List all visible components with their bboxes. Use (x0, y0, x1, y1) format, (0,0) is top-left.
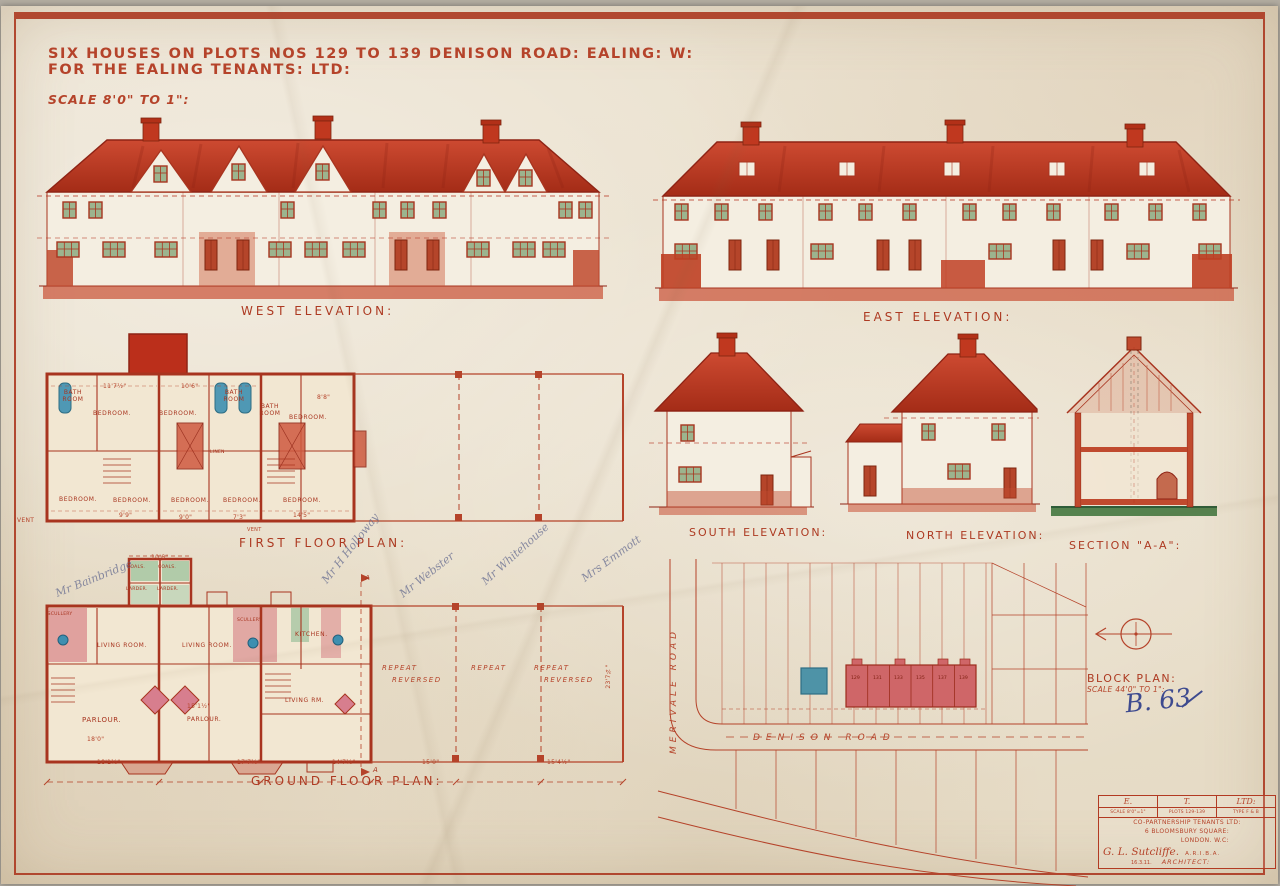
sheet-scale-note: SCALE 8'0" TO 1": (48, 92, 694, 107)
west-elevation-drawing (43, 110, 603, 306)
sheet-title-block: SIX HOUSES ON PLOTS NOS 129 TO 139 DENIS… (48, 46, 694, 107)
architect-signature: G. L. Sutcliffe. (1103, 846, 1179, 858)
room-label-living-room: LIVING RM. (285, 697, 324, 704)
room-label-scullery: SCULLERY (47, 612, 73, 617)
dimension: 10'6" (151, 554, 168, 561)
vent-note: VENT (17, 517, 34, 524)
sheet-title-line2: FOR THE EALING TENANTS: LTD: (48, 62, 694, 78)
room-label-bathroom: BATH ROOM (59, 390, 87, 404)
merivale-road-label: MERIVALE ROAD (669, 628, 679, 754)
room-label-bedroom: BEDROOM. (171, 497, 209, 504)
title-block-abbr-t: T. (1158, 796, 1217, 807)
room-label-bedroom: BEDROOM. (283, 497, 321, 504)
title-block: E. T. LTD: SCALE 8'0"=1" PLOTS 129-139 T… (1098, 795, 1276, 869)
signature-date: 16.3.11. (1131, 860, 1152, 866)
compass-icon (1094, 606, 1176, 662)
block-plan-drawing (656, 559, 1088, 886)
dimension: 15'4½" (547, 759, 570, 766)
title-block-meta-plots: PLOTS 129-139 (1158, 808, 1217, 817)
block-plan-label: BLOCK PLAN: (1087, 672, 1176, 685)
title-block-company-line1: CO-PARTNERSHIP TENANTS LTD: (1099, 818, 1275, 827)
title-block-company-line3: LONDON. W.C: (1099, 836, 1275, 845)
room-label-coals: COALS. (158, 565, 176, 570)
title-block-date-row: 16.3.11. ARCHITECT: (1099, 858, 1275, 866)
room-label-kitchen: KITCHEN. (295, 631, 328, 638)
title-block-meta-type: TYPE F & B (1217, 808, 1275, 817)
dimension: 14'7½" (332, 759, 355, 766)
room-label-bedroom: BEDROOM. (159, 410, 197, 417)
repeat-note: REVERSED (544, 676, 594, 684)
room-label-larder: LARDER. (157, 587, 178, 592)
section-drawing (1059, 339, 1209, 529)
dimension: 18'1½" (97, 759, 120, 766)
title-block-meta-row: SCALE 8'0"=1" PLOTS 129-139 TYPE F & B (1099, 808, 1275, 818)
dimension: 9'0" (179, 514, 192, 521)
room-label-bathroom: BATH ROOM (257, 404, 283, 418)
denison-road-label: DENISON ROAD (753, 733, 896, 743)
room-label-bedroom: BEDROOM. (223, 497, 261, 504)
south-elevation-label: SOUTH ELEVATION: (689, 526, 827, 539)
repeat-note: REPEAT (471, 664, 507, 672)
sheet-title-line1: SIX HOUSES ON PLOTS NOS 129 TO 139 DENIS… (48, 46, 694, 62)
drawing-sheet: SIX HOUSES ON PLOTS NOS 129 TO 139 DENIS… (1, 6, 1278, 884)
section-marker-a: A (365, 574, 370, 582)
room-label-scullery: SCULLERY (237, 618, 262, 623)
title-block-abbr-e: E. (1099, 796, 1158, 807)
dimension: 15'0" (422, 759, 439, 766)
north-elevation-drawing (844, 334, 1039, 521)
room-label-linen: LINEN (210, 450, 225, 455)
room-label-larder: LARDER. (126, 587, 147, 592)
first-floor-plan-label: FIRST FLOOR PLAN: (239, 536, 407, 550)
title-block-company-line2: 6 BLOOMSBURY SQUARE: (1099, 827, 1275, 836)
architect-credentials: A.R.I.B.A. (1185, 851, 1220, 857)
room-label-bedroom: BEDROOM. (113, 497, 151, 504)
block-plan-plot-number: 131 (873, 676, 882, 681)
room-label-parlour: PARLOUR. (187, 716, 221, 723)
room-label-living-room: LIVING ROOM. (182, 642, 232, 649)
dimension: 14'5" (293, 512, 310, 519)
room-label-living-room: LIVING ROOM. (97, 642, 147, 649)
block-plan-plot-number: 129 (851, 676, 860, 681)
repeat-note: REPEAT (534, 664, 570, 672)
room-label-bedroom: BEDROOM. (59, 496, 97, 503)
dimension: 23'7¾" (605, 664, 612, 689)
dimension: 17'7½" (237, 759, 260, 766)
repeat-note: REVERSED (392, 676, 442, 684)
room-label-bedroom: BEDROOM. (93, 410, 131, 417)
east-elevation-drawing (659, 116, 1234, 306)
repeat-note: REPEAT (382, 664, 418, 672)
south-elevation-drawing (649, 339, 814, 524)
title-block-abbr-row: E. T. LTD: (1099, 796, 1275, 808)
room-label-bedroom: BEDROOM. (289, 414, 327, 421)
west-elevation-label: WEST ELEVATION: (241, 304, 394, 318)
north-elevation-label: NORTH ELEVATION: (906, 529, 1044, 542)
room-label-bathroom: BATH ROOM (221, 390, 247, 404)
title-block-signature-row: G. L. Sutcliffe. A.R.I.B.A. (1099, 845, 1275, 858)
dimension: 7'3" (233, 514, 246, 521)
dimension: 15'1½" (187, 703, 210, 710)
section-marker-a: A (373, 766, 378, 774)
dimension: 9'9" (119, 512, 132, 519)
title-block-meta-scale: SCALE 8'0"=1" (1099, 808, 1158, 817)
dimension: 8'8" (317, 394, 330, 401)
block-plan-plot-number: 139 (959, 676, 968, 681)
dimension: 10'6" (181, 383, 198, 390)
block-plan-plot-number: 133 (894, 676, 903, 681)
block-plan-plot-number: 137 (938, 676, 947, 681)
dimension: 11'7½" (103, 383, 126, 390)
dimension: 18'0" (87, 736, 104, 743)
room-label-parlour: PARLOUR. (82, 716, 121, 724)
ground-floor-plan-label: GROUND FLOOR PLAN: (251, 774, 443, 788)
title-block-abbr-ltd: LTD: (1217, 796, 1275, 807)
east-elevation-label: EAST ELEVATION: (863, 310, 1012, 324)
vent-note: VENT (247, 527, 262, 533)
block-plan-plot-number: 135 (916, 676, 925, 681)
section-label: SECTION "A-A": (1069, 539, 1181, 552)
architect-role: ARCHITECT: (1162, 858, 1211, 866)
